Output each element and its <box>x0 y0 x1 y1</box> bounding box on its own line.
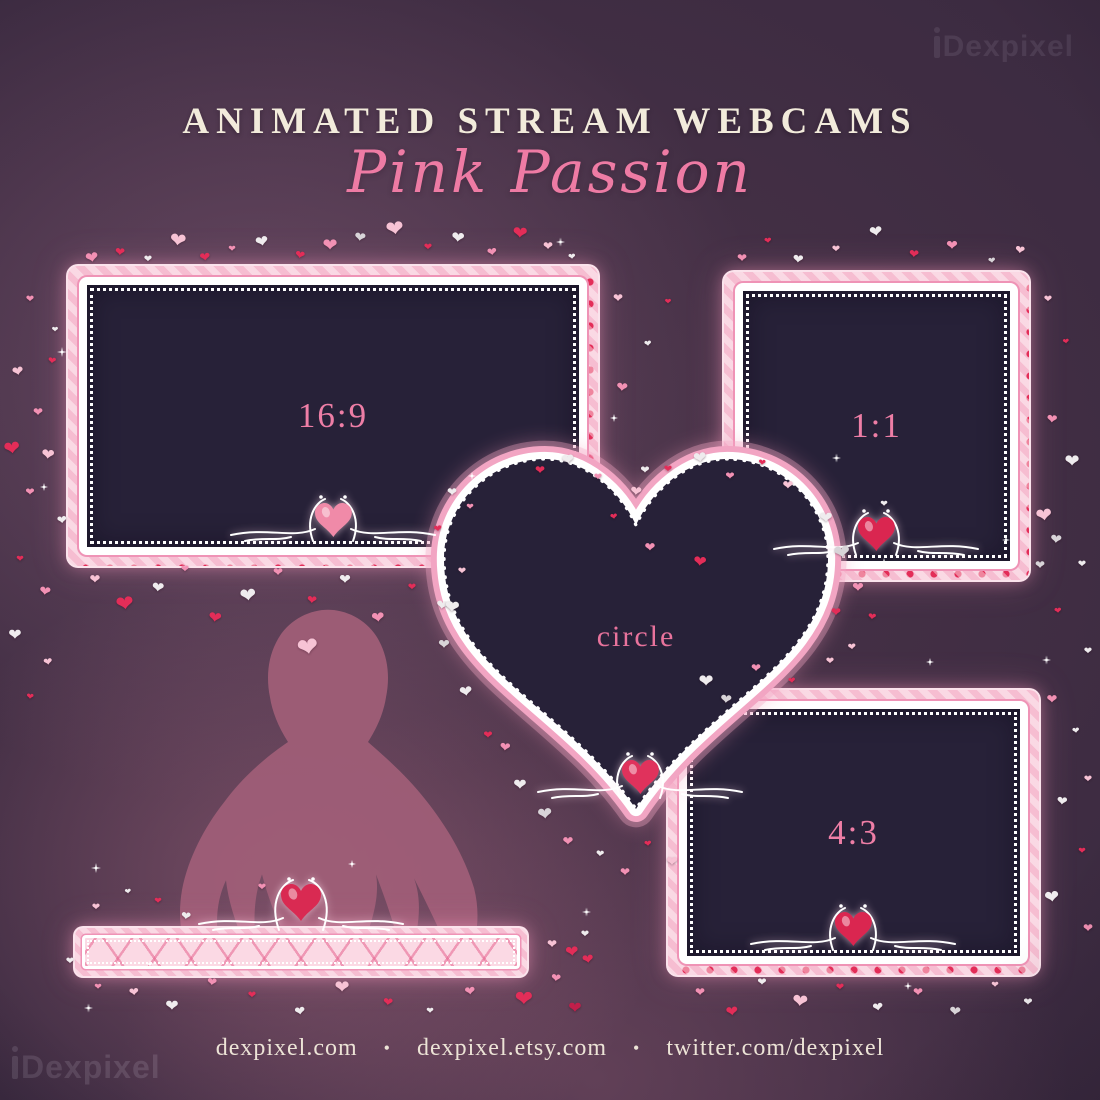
heart-icon: ❤ <box>991 982 999 991</box>
heart-icon: ❤ <box>1078 560 1086 570</box>
heart-icon: ❤ <box>725 1004 739 1020</box>
heart-icon: ❤ <box>867 613 876 624</box>
heart-icon: ❤ <box>1084 775 1092 785</box>
frame-label-4-3: 4:3 <box>828 813 879 853</box>
heart-icon: ❤ <box>486 245 498 258</box>
heart-icon: ❤ <box>872 1001 885 1015</box>
heart-icon: ❤ <box>151 580 165 596</box>
heart-icon: ❤ <box>90 574 101 587</box>
heart-icon: ❤ <box>450 229 465 246</box>
sparkle-icon <box>40 483 48 491</box>
sparkle-icon <box>926 658 934 666</box>
heart-icon: ❤ <box>515 989 533 1011</box>
bullet-separator-icon: • <box>384 1038 391 1059</box>
heart-icon: ❤ <box>382 996 393 1009</box>
heart-icon: ❤ <box>1064 453 1079 471</box>
heart-icon: ❤ <box>547 938 557 950</box>
watermark-text: Dexpixel <box>21 1049 161 1086</box>
heart-icon: ❤ <box>426 1008 434 1017</box>
heart-icon: ❤ <box>408 583 416 593</box>
heart-icon: ❤ <box>1035 559 1045 571</box>
heart-icon: ❤ <box>1023 997 1032 1008</box>
sparkle-icon <box>1042 656 1051 665</box>
brand-i-mark-icon <box>934 36 940 58</box>
heart-icon: ❤ <box>43 656 54 668</box>
heart-icon: ❤ <box>1084 647 1092 657</box>
heart-icon: ❤ <box>128 986 139 999</box>
heart-icon: ❤ <box>764 237 772 247</box>
footer-links: dexpixel.com • dexpixel.etsy.com • twitt… <box>0 1035 1100 1062</box>
heart-icon: ❤ <box>464 985 476 999</box>
heart-icon: ❤ <box>248 991 256 1001</box>
heart-icon: ❤ <box>568 253 576 263</box>
footer-link-twitter: twitter.com/dexpixel <box>666 1035 884 1062</box>
heart-icon: ❤ <box>868 223 884 241</box>
heart-icon: ❤ <box>564 943 579 960</box>
heart-icon: ❤ <box>26 295 34 305</box>
heart-icon: ❤ <box>114 593 135 617</box>
heart-icon: ❤ <box>206 976 217 989</box>
heart-icon: ❤ <box>563 836 574 849</box>
heart-icon: ❤ <box>946 239 958 253</box>
heart-icon: ❤ <box>908 248 919 261</box>
heart-icon: ❤ <box>620 866 630 878</box>
sparkle-icon <box>91 863 101 873</box>
heart-icon: ❤ <box>40 446 55 463</box>
heart-icon: ❤ <box>294 1005 307 1019</box>
heart-icon: ❤ <box>665 298 672 306</box>
heart-icon: ❤ <box>948 1004 961 1019</box>
page-subtitle: Pink Passion <box>0 138 1100 206</box>
heart-icon: ❤ <box>1014 243 1026 256</box>
promo-canvas: ANIMATED STREAM WEBCAMS Pink Passion 16:… <box>0 0 1100 1100</box>
heart-icon: ❤ <box>66 957 74 967</box>
heart-icon: ❤ <box>550 972 561 985</box>
heart-icon: ❤ <box>1078 848 1086 857</box>
sparkle-icon <box>84 1004 93 1013</box>
heart-icon: ❤ <box>254 233 270 251</box>
watermark-text: Dexpixel <box>943 30 1074 64</box>
heart-icon: ❤ <box>913 986 923 998</box>
heart-icon: ❤ <box>852 581 864 595</box>
heart-icon: ❤ <box>644 840 652 850</box>
heart-icon: ❤ <box>384 218 405 242</box>
heart-icon: ❤ <box>165 998 178 1014</box>
heart-icon: ❤ <box>94 984 102 993</box>
frame-label-16-9: 16:9 <box>298 396 368 436</box>
sparkle-icon <box>610 414 618 422</box>
brand-i-mark-icon <box>12 1056 18 1079</box>
footer-link-etsy: dexpixel.etsy.com <box>417 1035 607 1062</box>
heart-icon: ❤ <box>228 246 236 255</box>
heart-icon: ❤ <box>1072 727 1080 737</box>
heart-icon: ❤ <box>581 930 589 940</box>
heart-icon: ❤ <box>695 986 705 998</box>
heart-icon: ❤ <box>199 251 211 265</box>
heart-icon: ❤ <box>294 248 306 262</box>
heart-icon: ❤ <box>56 514 67 527</box>
heart-icon: ❤ <box>644 340 652 350</box>
frame-label-1-1: 1:1 <box>851 406 902 446</box>
heart-icon: ❤ <box>1049 532 1062 547</box>
heart-icon: ❤ <box>737 252 747 264</box>
webcam-frame-circle: circle <box>444 459 828 809</box>
heart-icon: ❤ <box>792 253 804 267</box>
heart-icon: ❤ <box>791 992 809 1013</box>
heart-icon: ❤ <box>353 230 367 245</box>
heart-icon: ❤ <box>38 584 52 599</box>
heart-icon: ❤ <box>847 643 856 654</box>
heart-icon: ❤ <box>168 229 187 251</box>
heart-icon: ❤ <box>25 487 34 498</box>
heart-icon: ❤ <box>273 566 283 578</box>
page-title: ANIMATED STREAM WEBCAMS <box>0 100 1100 143</box>
heart-icon: ❤ <box>1056 795 1068 809</box>
heart-icon: ❤ <box>114 246 125 259</box>
heart-icon: ❤ <box>124 888 132 897</box>
heart-icon: ❤ <box>181 565 189 575</box>
label-bar-lattice <box>82 935 520 969</box>
heart-icon: ❤ <box>322 237 337 255</box>
heart-icon: ❤ <box>26 693 34 703</box>
heart-icon: ❤ <box>8 627 21 643</box>
decorative-label-bar <box>75 928 527 976</box>
heart-icon: ❤ <box>1047 694 1058 707</box>
frame-label-circle: circle <box>444 620 828 654</box>
heart-icon: ❤ <box>613 292 623 304</box>
heart-icon: ❤ <box>1034 504 1053 526</box>
heart-icon: ❤ <box>1083 922 1093 934</box>
sparkle-icon <box>556 238 565 247</box>
heart-icon: ❤ <box>1043 888 1060 908</box>
heart-icon: ❤ <box>144 255 152 265</box>
watermark-top-right: Dexpixel <box>934 30 1074 64</box>
heart-icon: ❤ <box>52 326 59 334</box>
heart-icon: ❤ <box>595 850 604 861</box>
heart-icon: ❤ <box>988 257 996 267</box>
sparkle-icon <box>57 347 67 357</box>
heart-icon: ❤ <box>47 357 56 368</box>
heart-icon: ❤ <box>581 952 595 967</box>
heart-icon: ❤ <box>339 573 351 587</box>
heart-icon: ❤ <box>424 243 432 253</box>
heart-icon: ❤ <box>836 983 844 993</box>
heart-icon: ❤ <box>1054 607 1062 617</box>
heart-icon: ❤ <box>568 1000 581 1016</box>
heart-icon: ❤ <box>757 977 766 988</box>
watermark-bottom-left: Dexpixel <box>12 1049 161 1086</box>
bullet-separator-icon: • <box>633 1038 640 1059</box>
heart-icon: ❤ <box>16 556 24 565</box>
heart-icon: ❤ <box>2 437 21 459</box>
footer-link-website: dexpixel.com <box>216 1035 358 1062</box>
sparkle-icon <box>904 982 912 990</box>
heart-icon: ❤ <box>512 224 528 243</box>
heart-icon: ❤ <box>84 249 100 267</box>
sparkle-icon <box>582 908 591 917</box>
heart-icon: ❤ <box>543 240 553 252</box>
heart-icon: ❤ <box>1062 338 1070 347</box>
heart-icon: ❤ <box>334 979 349 997</box>
heart-icon: ❤ <box>1044 295 1052 305</box>
heart-icon: ❤ <box>615 380 628 395</box>
heart-icon: ❤ <box>11 364 25 380</box>
heart-icon: ❤ <box>1046 413 1058 427</box>
heart-icon: ❤ <box>832 245 840 255</box>
heart-icon: ❤ <box>92 903 100 913</box>
heart-icon: ❤ <box>33 406 43 418</box>
